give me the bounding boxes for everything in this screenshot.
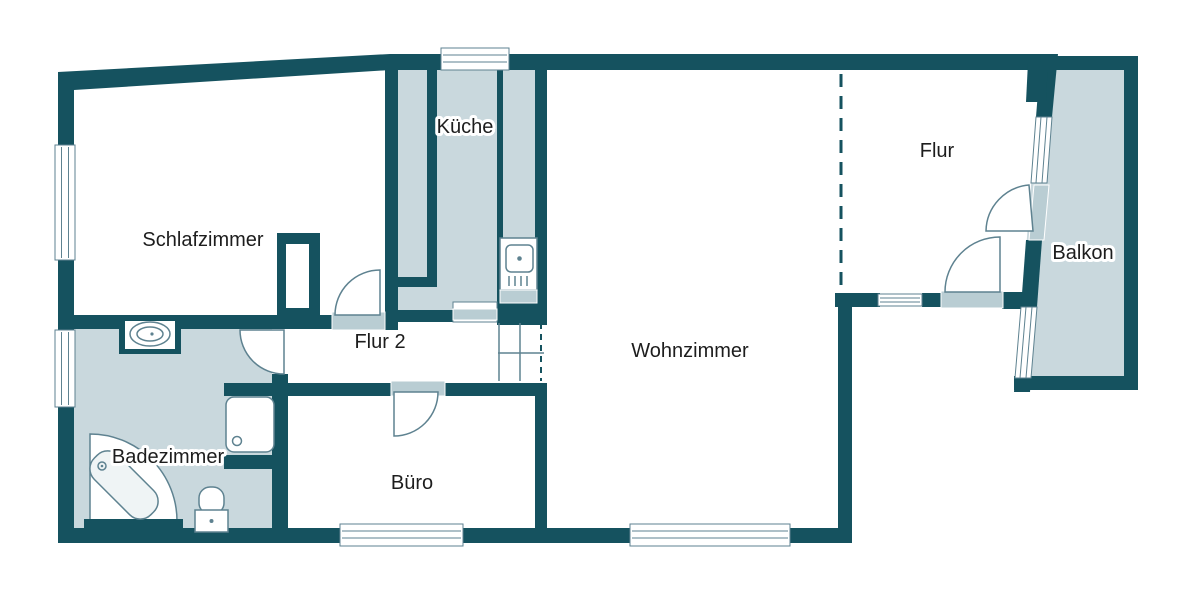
wall-segment	[385, 70, 398, 330]
wall-segment	[497, 303, 547, 325]
window	[340, 524, 463, 546]
kitchen-fixtures	[500, 238, 537, 303]
room-label-flur: Flur	[920, 140, 955, 162]
washbasin-icon	[130, 322, 170, 346]
wall-segment	[272, 374, 288, 530]
room-label-schlafzimmer: Schlafzimmer	[142, 229, 263, 251]
balcony-wall-bottom	[1014, 376, 1138, 390]
wall-segment	[922, 293, 942, 307]
window	[55, 145, 75, 260]
bathtub-plinth	[84, 519, 183, 532]
room-label-flur2: Flur 2	[354, 331, 405, 353]
wall-segment	[427, 70, 437, 287]
balcony-wall-right	[1124, 56, 1138, 390]
counter-base	[500, 290, 537, 303]
window	[441, 48, 509, 70]
window	[55, 330, 75, 407]
room-label-kueche: Küche	[437, 116, 494, 138]
wall-segment	[387, 310, 453, 322]
wall-segment	[838, 293, 852, 543]
room-label-wohnzimmer: Wohnzimmer	[631, 340, 749, 362]
floorplan-canvas: Schlafzimmer Küche Flur 2 Wohnzimmer Flu…	[0, 0, 1200, 600]
window	[630, 524, 790, 546]
floorplan-svg: Schlafzimmer Küche Flur 2 Wohnzimmer Flu…	[0, 0, 1200, 600]
chimney-shaft-interior	[286, 244, 309, 308]
door-sill	[941, 291, 1003, 308]
wall-segment	[835, 293, 880, 307]
wall-segment	[58, 72, 74, 543]
wall-segment	[535, 383, 547, 530]
wall-segment	[390, 277, 437, 287]
kitchen-threshold-step	[453, 309, 497, 320]
room-label-balkon: Balkon	[1052, 242, 1113, 264]
wall-segment	[224, 455, 282, 469]
pass-through-opening	[878, 294, 922, 306]
room-label-badezimmer: Badezimmer	[112, 446, 225, 468]
room-label-buero: Büro	[391, 472, 433, 494]
balcony-wall-top	[1041, 56, 1138, 70]
